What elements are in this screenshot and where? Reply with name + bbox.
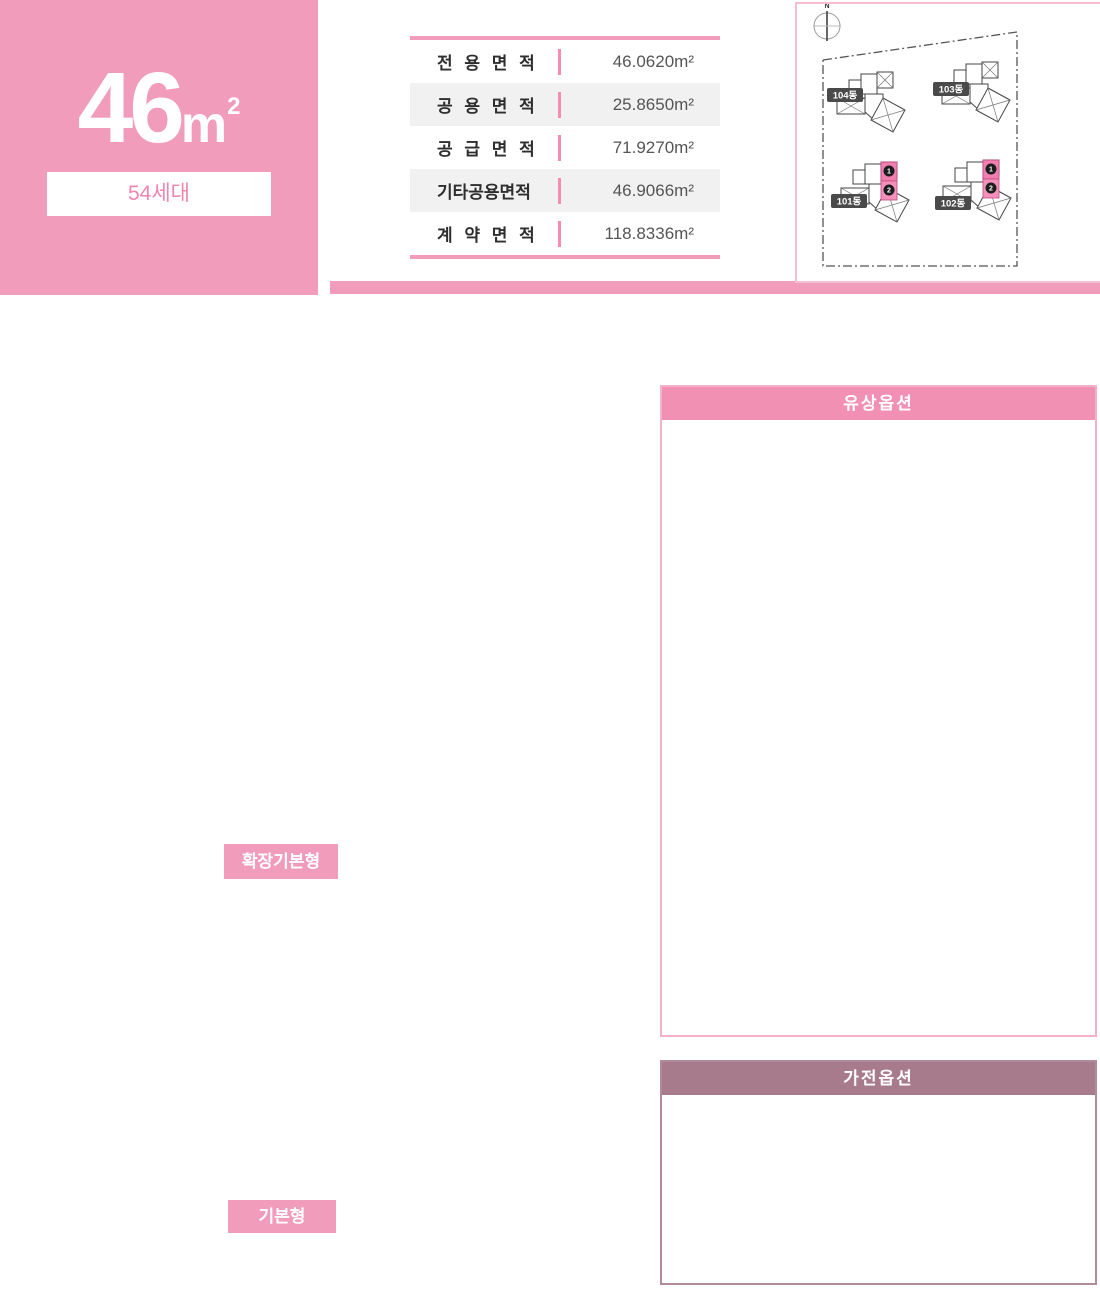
area-label: 기타공용면적	[410, 178, 558, 203]
page: 46m2 54세대 전 용 면 적46.0620m²공 용 면 적25.8650…	[0, 0, 1100, 1293]
area-row: 기타공용면적46.9066m²	[410, 169, 720, 212]
paid-options-body	[662, 420, 1095, 454]
building-badge: 104동	[827, 88, 863, 102]
unit-size-card: 46m2	[0, 0, 318, 295]
area-row: 공 용 면 적25.8650m²	[410, 83, 720, 126]
building-shape: 12	[943, 160, 1011, 220]
svg-text:2: 2	[989, 186, 993, 193]
area-value: 25.8650m²	[561, 95, 720, 115]
unit-size-number: 46	[78, 52, 181, 164]
area-value: 46.0620m²	[561, 52, 720, 72]
area-label: 계 약 면 적	[410, 221, 558, 246]
floorplan-basic	[165, 993, 405, 1188]
appliance-header: 가전옵션	[662, 1062, 1095, 1095]
paid-options-panel: 유상옵션	[660, 385, 1097, 1037]
area-value: 71.9270m²	[561, 138, 720, 158]
compass-label: N	[824, 4, 829, 10]
building-shape: 12	[841, 162, 909, 222]
svg-text:2: 2	[887, 188, 891, 195]
plan-label-basic: 기본형	[228, 1200, 336, 1233]
paid-options-header: 유상옵션	[662, 387, 1095, 420]
area-row: 계 약 면 적118.8336m²	[410, 212, 720, 255]
area-label: 공 급 면 적	[410, 135, 558, 160]
building-badge: 103동	[933, 82, 969, 96]
area-label: 공 용 면 적	[410, 92, 558, 117]
area-row: 전 용 면 적46.0620m²	[410, 40, 720, 83]
unit-size: 46m2	[0, 58, 318, 158]
appliance-panel: 가전옵션	[660, 1060, 1097, 1285]
building-name: 103동	[939, 85, 964, 96]
appliance-body	[662, 1095, 1095, 1163]
plan-label-extended: 확장기본형	[224, 844, 338, 879]
building-badge: 101동	[831, 194, 867, 208]
site-plan: N104동103동12101동12102동	[795, 2, 1100, 283]
floorplan-extended	[60, 442, 555, 842]
site-plan-svg: N104동103동12101동12102동	[797, 4, 1096, 277]
building-badge: 102동	[935, 196, 971, 210]
building-name: 102동	[941, 199, 966, 210]
area-row: 공 급 면 적71.9270m²	[410, 126, 720, 169]
household-badge: 54세대	[47, 172, 271, 216]
building-name: 101동	[837, 197, 862, 208]
svg-text:1: 1	[989, 167, 993, 174]
unit-size-unit: m2	[181, 96, 241, 154]
area-label: 전 용 면 적	[410, 49, 558, 74]
area-value: 118.8336m²	[561, 224, 720, 244]
building-name: 104동	[833, 91, 858, 102]
svg-text:1: 1	[887, 169, 891, 176]
area-table: 전 용 면 적46.0620m²공 용 면 적25.8650m²공 급 면 적7…	[410, 36, 720, 259]
area-value: 46.9066m²	[561, 181, 720, 201]
